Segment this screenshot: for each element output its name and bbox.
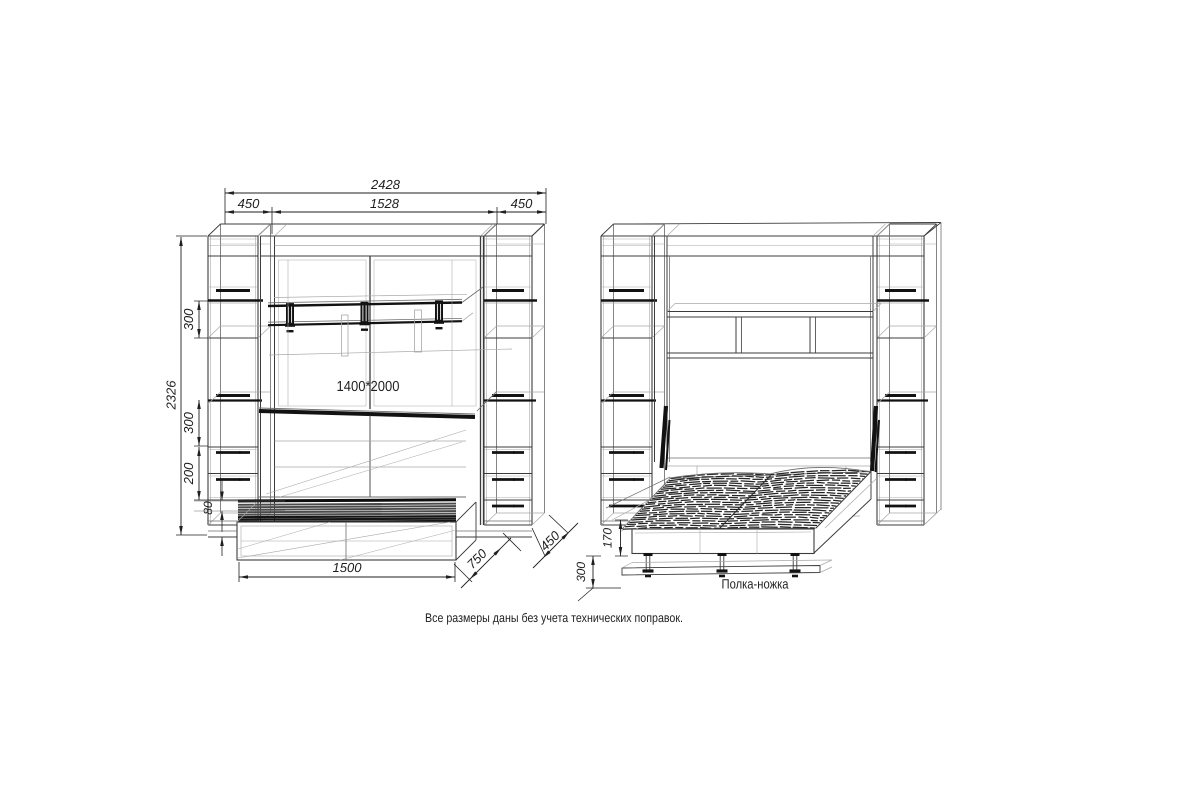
svg-text:1500: 1500 <box>333 560 363 575</box>
svg-text:80: 80 <box>201 501 215 515</box>
svg-text:170: 170 <box>601 528 615 548</box>
svg-text:Полка-ножка: Полка-ножка <box>722 577 789 592</box>
svg-text:2326: 2326 <box>164 380 179 411</box>
svg-text:1528: 1528 <box>370 196 400 211</box>
svg-text:1400*2000: 1400*2000 <box>337 379 400 395</box>
svg-text:300: 300 <box>181 308 196 330</box>
svg-text:300: 300 <box>181 411 196 433</box>
svg-text:2428: 2428 <box>370 177 401 192</box>
svg-text:Все размеры даны без учета тех: Все размеры даны без учета технических п… <box>425 611 683 625</box>
svg-text:450: 450 <box>511 196 533 211</box>
svg-text:450: 450 <box>238 196 260 211</box>
svg-text:300: 300 <box>574 562 588 582</box>
svg-text:200: 200 <box>181 462 196 485</box>
